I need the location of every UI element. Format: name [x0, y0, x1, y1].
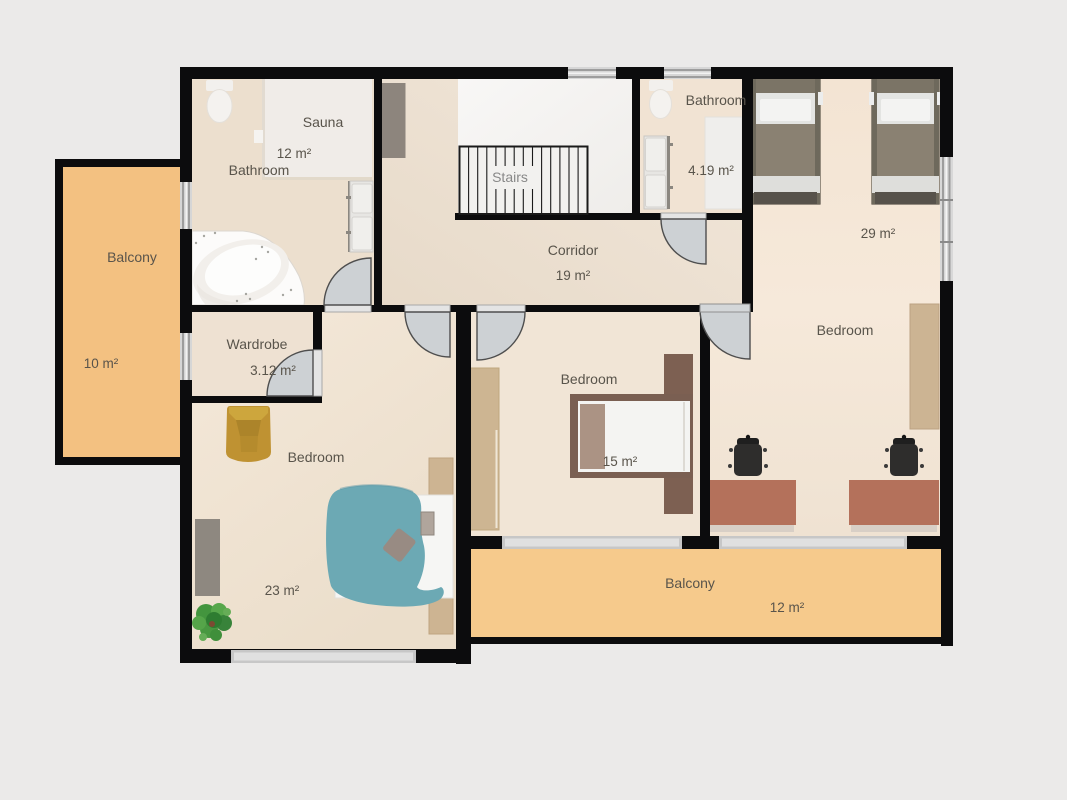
svg-text:Sauna: Sauna: [303, 114, 344, 130]
svg-text:Bedroom: Bedroom: [288, 449, 345, 465]
svg-text:Balcony: Balcony: [665, 575, 715, 591]
svg-text:Balcony: Balcony: [107, 249, 157, 265]
svg-text:12 m²: 12 m²: [770, 600, 805, 615]
svg-text:23 m²: 23 m²: [265, 583, 300, 598]
svg-text:3.12 m²: 3.12 m²: [250, 363, 296, 378]
svg-text:15 m²: 15 m²: [603, 454, 638, 469]
svg-text:19 m²: 19 m²: [556, 268, 591, 283]
svg-text:4.19 m²: 4.19 m²: [688, 163, 734, 178]
svg-text:Bedroom: Bedroom: [817, 322, 874, 338]
svg-text:Bathroom: Bathroom: [229, 162, 290, 178]
svg-text:Corridor: Corridor: [548, 242, 599, 258]
svg-text:Bedroom: Bedroom: [561, 371, 618, 387]
svg-text:Bathroom: Bathroom: [686, 92, 747, 108]
svg-text:29 m²: 29 m²: [861, 226, 896, 241]
svg-text:12 m²: 12 m²: [277, 146, 312, 161]
svg-text:Stairs: Stairs: [492, 169, 528, 185]
svg-text:10 m²: 10 m²: [84, 356, 119, 371]
svg-text:Wardrobe: Wardrobe: [227, 336, 288, 352]
